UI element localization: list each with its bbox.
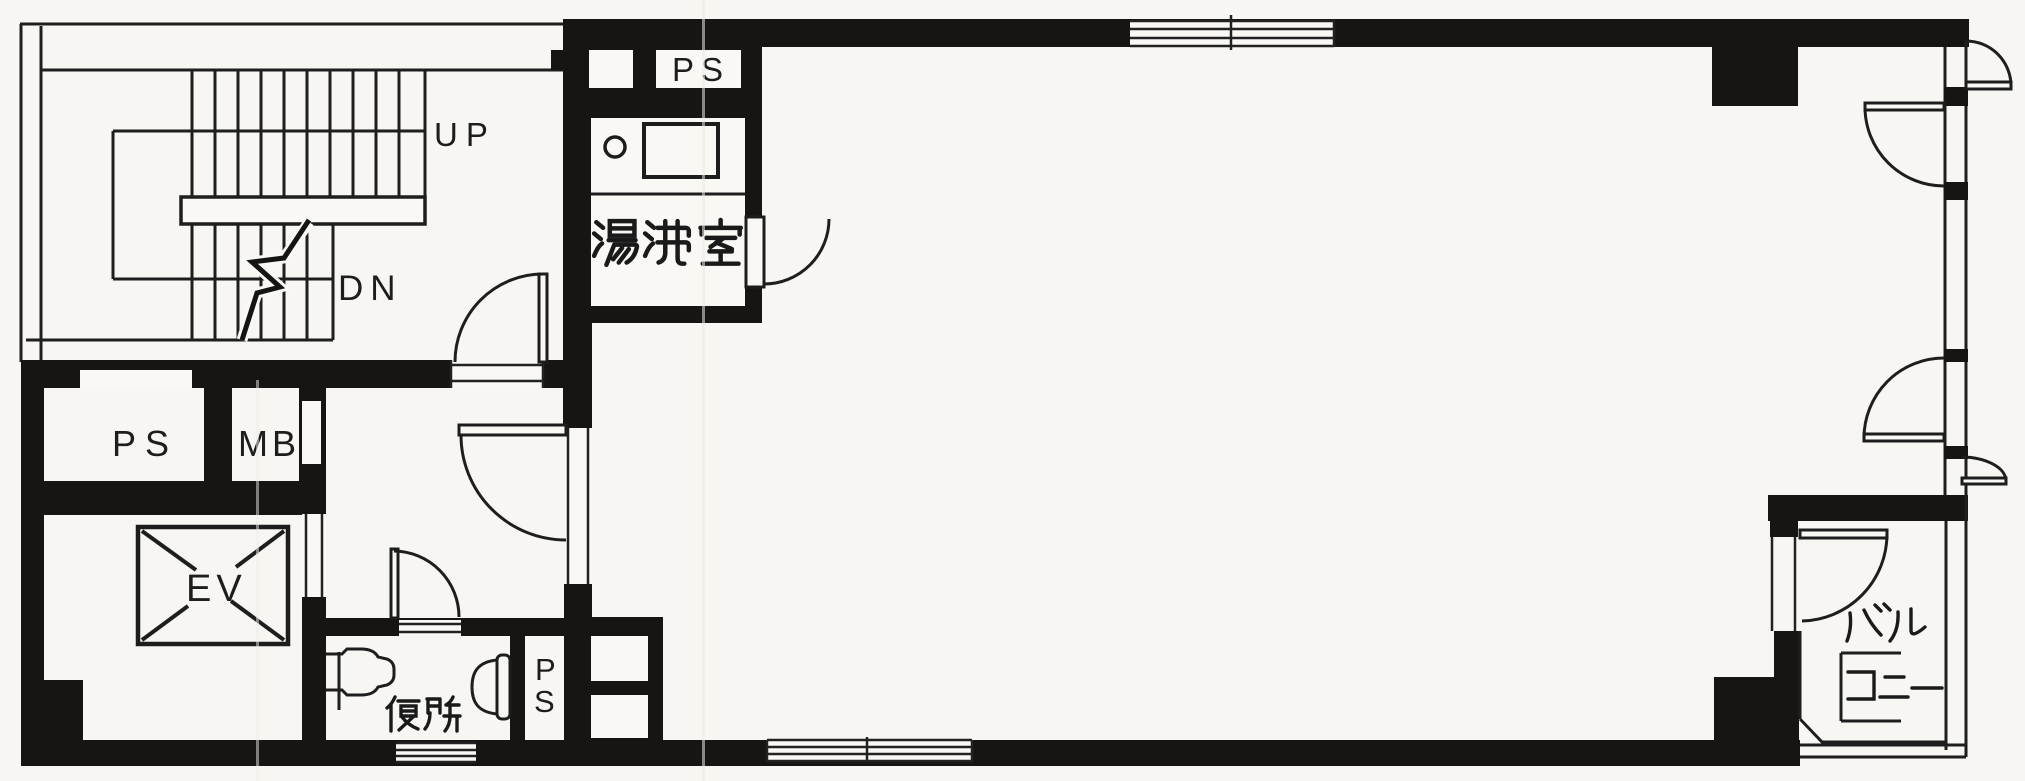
svg-text:DN: DN xyxy=(338,269,403,308)
svg-text:PS: PS xyxy=(672,51,730,88)
svg-text:P: P xyxy=(535,652,556,687)
svg-text:S: S xyxy=(534,684,555,719)
svg-text:UP: UP xyxy=(434,116,496,153)
svg-text:MB: MB xyxy=(238,423,300,464)
svg-text:PS: PS xyxy=(112,423,178,464)
svg-text:EV: EV xyxy=(186,568,247,610)
